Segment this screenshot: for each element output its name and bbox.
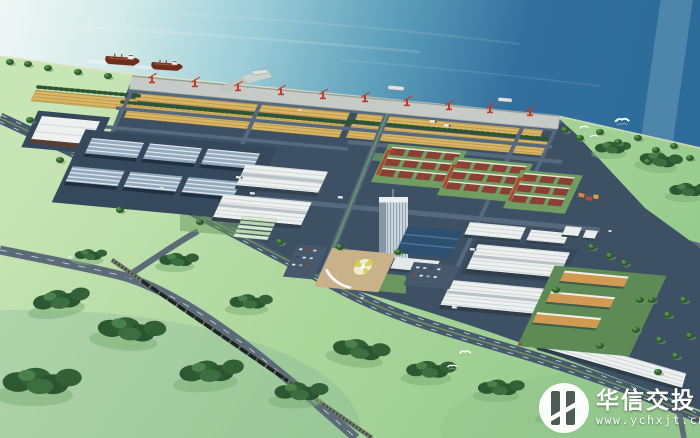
watermark-brand: 华信交投 bbox=[596, 389, 700, 414]
rendering-canvas bbox=[0, 0, 700, 438]
watermark-url: www.ychxjt.cn bbox=[596, 413, 700, 427]
watermark: 华信交投 www.ychxjt.cn bbox=[537, 381, 700, 435]
huaxin-logo-icon bbox=[537, 381, 591, 435]
aerial-rendering: 华信交投 www.ychxjt.cn bbox=[0, 0, 700, 438]
